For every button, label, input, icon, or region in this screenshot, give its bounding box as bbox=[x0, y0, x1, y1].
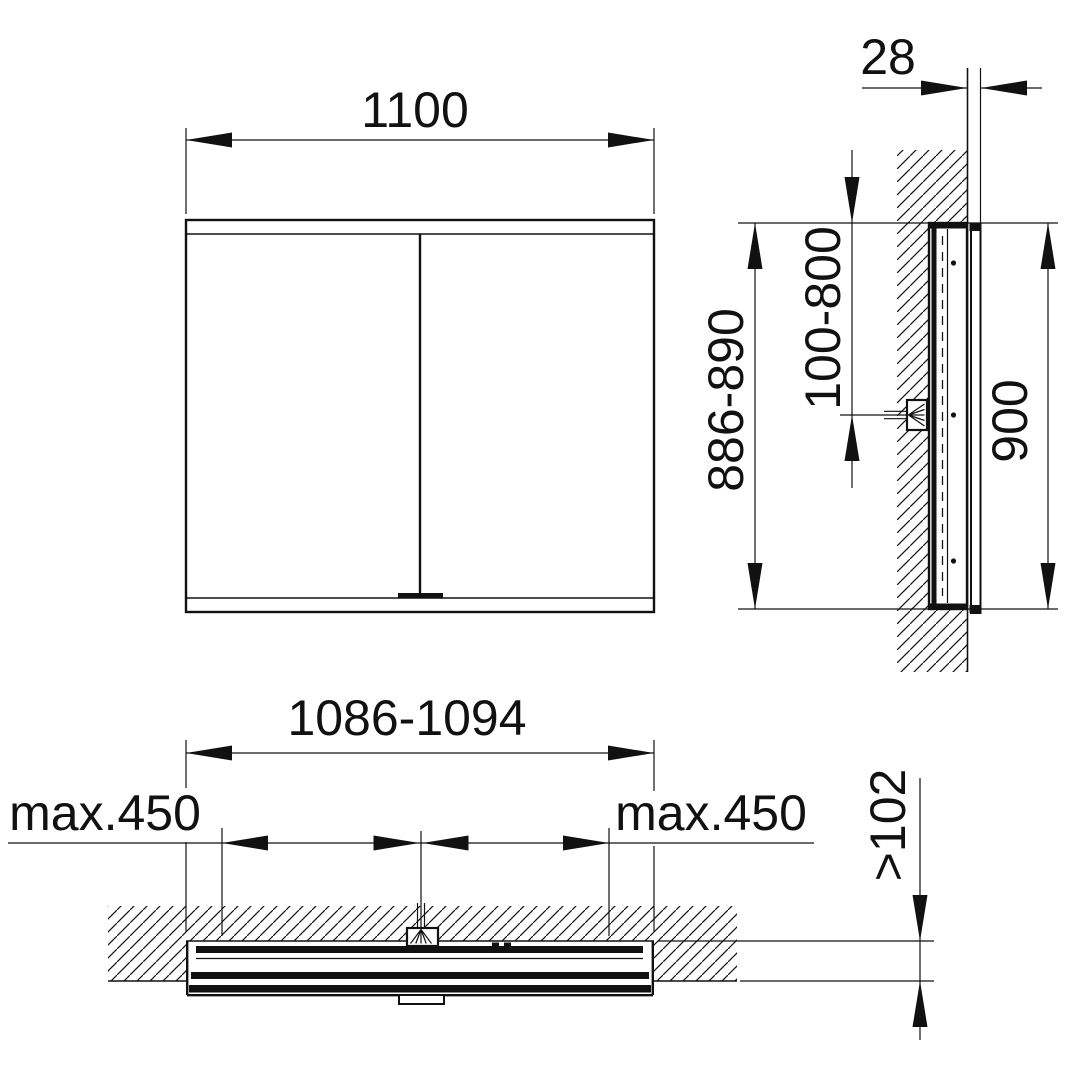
arrowhead bbox=[563, 836, 609, 851]
arrowhead bbox=[186, 133, 232, 148]
wall-hatch-bottom bbox=[897, 609, 967, 672]
arrowhead bbox=[748, 563, 763, 609]
arrowhead bbox=[1041, 563, 1056, 609]
hinge-dot bbox=[951, 412, 956, 417]
arrowhead bbox=[913, 895, 928, 941]
arrowhead bbox=[913, 981, 928, 1027]
wall-hatch-right bbox=[654, 941, 737, 981]
dim-cable-exit-zone: 100-800 bbox=[798, 226, 848, 410]
dim-cabinet-height: 900 bbox=[985, 379, 1035, 462]
arrowhead bbox=[921, 81, 967, 96]
side-back-panel bbox=[932, 227, 937, 605]
plan-handle bbox=[399, 995, 444, 1004]
front-handle bbox=[398, 593, 443, 598]
arrowhead bbox=[608, 746, 654, 761]
side-view bbox=[738, 68, 1058, 672]
door-top-cap bbox=[970, 223, 982, 231]
arrowhead bbox=[222, 836, 268, 851]
wall-hatch-top bbox=[897, 150, 967, 223]
arrowhead bbox=[845, 177, 860, 223]
dim-wall-clearance: 28 bbox=[860, 32, 916, 82]
arrowhead bbox=[748, 223, 763, 269]
dim-recess-width: 1086-1094 bbox=[287, 693, 526, 743]
arrowhead bbox=[981, 81, 1027, 96]
dim-recess-depth: >102 bbox=[863, 769, 913, 882]
front-view bbox=[186, 128, 654, 612]
arrowhead bbox=[423, 836, 469, 851]
fixing-clip bbox=[504, 943, 511, 947]
plan-mid-panel bbox=[191, 972, 649, 979]
arrowhead bbox=[608, 133, 654, 148]
arrowhead bbox=[845, 415, 860, 461]
hinge-dot bbox=[951, 558, 956, 563]
arrowhead bbox=[374, 836, 420, 851]
side-top-panel bbox=[929, 223, 967, 229]
plan-door-panel bbox=[189, 985, 651, 993]
dim-fixing-left: max.450 bbox=[9, 788, 201, 838]
fixing-clip bbox=[492, 943, 499, 947]
dim-recess-height: 886-890 bbox=[701, 308, 751, 492]
dim-fixing-right: max.450 bbox=[615, 788, 807, 838]
arrowhead bbox=[1041, 223, 1056, 269]
technical-drawing: 1100 28 886-890 100-800 900 1086-1094 ma… bbox=[0, 0, 1080, 1080]
wall-hatch-left bbox=[108, 941, 186, 981]
side-bottom-panel bbox=[929, 604, 967, 610]
arrowhead bbox=[186, 746, 232, 761]
side-mirror-door bbox=[971, 225, 981, 613]
hinge-dot bbox=[951, 260, 956, 265]
dim-front-width: 1100 bbox=[361, 85, 469, 135]
drawing-svg bbox=[0, 0, 1080, 1080]
